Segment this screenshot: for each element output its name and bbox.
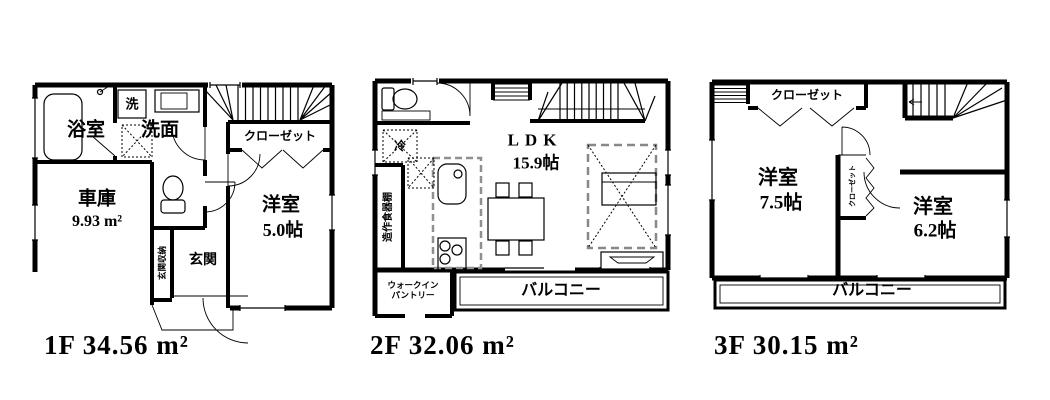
hatch-3f-icon — [714, 85, 748, 103]
porch-outline-1f — [152, 305, 233, 330]
room-label-western-room-2-size: 6.2帖 — [914, 222, 957, 241]
floor-area-label-2f: 2F 32.06 m² — [370, 330, 515, 361]
room-label-western-room-1: 洋室 — [758, 168, 798, 188]
room-label-closet-3f-top: クローゼット — [771, 89, 843, 101]
room-label-ldk: LDK — [508, 132, 563, 149]
niche-hatch-2f-icon — [493, 84, 530, 100]
toilet-2f-icon — [382, 88, 430, 120]
room-label-entrance: 玄関 — [189, 254, 217, 268]
sofa-dashed-box-icon — [588, 145, 656, 248]
stairs-3f-icon — [909, 82, 1007, 118]
room-label-garage: 車庫 — [78, 190, 116, 209]
room-label-western-room-2: 洋室 — [913, 197, 953, 217]
room-label-western-room-1-size: 7.5帖 — [760, 194, 803, 213]
room-label-ldk-size: 15.9帖 — [513, 155, 560, 172]
room-label-balcony-2f: バルコニー — [521, 283, 601, 299]
room-label-entrance-storage: 玄関収納 — [158, 246, 167, 280]
floor-area-label-1f: 1F 34.56 m² — [44, 330, 189, 361]
stairs-2f-icon — [538, 81, 655, 121]
room-label-closet-1f: クローゼット — [244, 130, 316, 142]
room-label-washer: 洗 — [125, 98, 138, 111]
doors-1f — [92, 127, 260, 343]
room-label-bath: 浴室 — [67, 121, 105, 140]
floor-area-label-3f: 3F 30.15 m² — [714, 330, 859, 361]
toilet-1f-icon — [161, 176, 185, 213]
closet-folding-doors-3f-icon — [758, 108, 854, 126]
room-label-fridge: 冷 — [394, 140, 406, 152]
room-label-closet-3f-mid: クローゼット — [850, 165, 857, 207]
floor-plan-3f: クローゼット 洋室 7.5帖 クローゼット 洋室 6.2帖 バルコニー 3F 3… — [706, 78, 1036, 388]
windows-2f — [372, 78, 671, 273]
room-label-western-room-1f-size: 5.0帖 — [263, 221, 304, 239]
floor-plan-sheet: 浴室 洗 洗面 クローゼット 車庫 9.93 m² 玄関収納 玄関 洋室 5.0… — [0, 0, 1050, 400]
stairs-1f-icon — [205, 85, 332, 122]
vanity-icon — [155, 90, 199, 112]
kitchen-icon — [408, 158, 481, 270]
room-label-cupboard: 造作食器棚 — [384, 192, 394, 242]
doors-2f — [437, 83, 470, 116]
floor-plan-1f: 浴室 洗 洗面 クローゼット 車庫 9.93 m² 玄関収納 玄関 洋室 5.0… — [30, 78, 360, 388]
dining-table-icon — [488, 183, 544, 255]
room-label-garage-area: 9.93 m² — [72, 214, 122, 230]
room-label-pantry-line2: パントリー — [392, 291, 435, 300]
room-label-western-room-1f: 洋室 — [262, 196, 300, 215]
room-label-balcony-3f: バルコニー — [832, 283, 912, 299]
tv-board-icon — [601, 252, 663, 269]
room-label-washroom: 洗面 — [141, 121, 179, 140]
floor-plan-2f: LDK 15.9帖 冷 造作食器棚 ウォークイン パントリー バルコニー 2F … — [372, 78, 702, 388]
room-label-pantry-line1: ウォークイン — [387, 281, 438, 290]
windows-3f — [709, 140, 1010, 281]
closet-folding-doors-1f-icon — [242, 150, 323, 168]
